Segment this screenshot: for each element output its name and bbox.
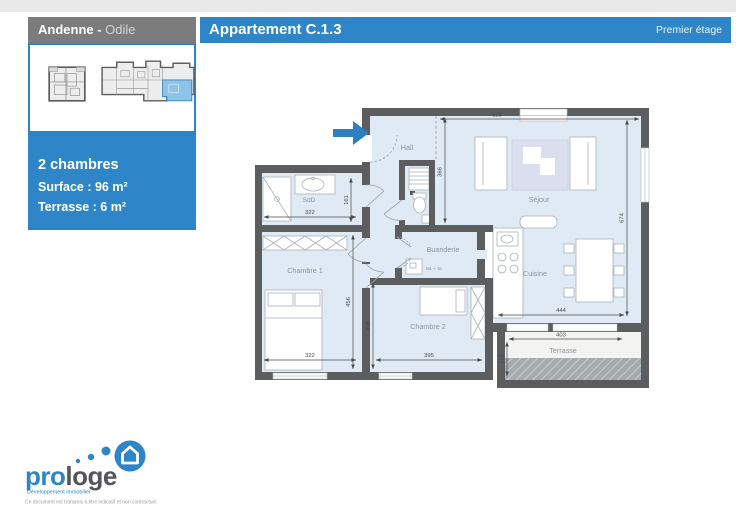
- dim-right-side: 674: [620, 212, 626, 222]
- prologe-logo: prologe Développement immobilier Ce docu…: [12, 430, 202, 510]
- mini-plan-building-a: [46, 63, 88, 105]
- terrace-label: Terrasse : 6 m²: [38, 200, 196, 214]
- page-top-edge: [0, 0, 736, 12]
- room-label-chambre2: Chambre 2: [410, 322, 446, 331]
- toilet: [414, 197, 426, 213]
- dim-terrace-depth: 162: [500, 354, 506, 364]
- location-box: Andenne - Odile: [28, 17, 196, 43]
- terrace-hatch: [505, 358, 641, 380]
- mini-plan-highlight-unit: [163, 80, 192, 101]
- dim-cuisine-width: 444: [556, 308, 566, 314]
- room-label-sdd: SdD: [303, 197, 316, 204]
- room-label-hall: Hall: [401, 143, 414, 152]
- bedrooms-label: 2 chambres: [38, 157, 196, 173]
- logo-text-loge: loge: [65, 461, 116, 491]
- logo-text-pro: pro: [25, 461, 65, 491]
- dim-chambre1-depth: 456: [346, 297, 352, 307]
- dim-sejour-width: 628: [492, 113, 502, 119]
- sejour-furniture: [475, 137, 596, 190]
- closet: [409, 168, 429, 190]
- mini-plans-box: [28, 43, 196, 133]
- washer: [406, 259, 422, 274]
- room-label-buanderie: Buanderie: [427, 245, 460, 254]
- dim-chambre1-width: 322: [305, 353, 315, 359]
- dim-chambre2-depth: 208: [366, 321, 372, 331]
- location-name: Andenne -: [38, 22, 105, 37]
- page-title: Appartement C.1.3: [209, 21, 342, 38]
- door-terrace-1: [507, 324, 548, 331]
- logo-circle: [115, 441, 146, 472]
- dim-sdd-width: 322: [305, 210, 315, 216]
- location-sub: Odile: [105, 22, 135, 37]
- dining-table: [576, 239, 613, 302]
- apartment-info-panel: 2 chambres Surface : 96 m² Terrasse : 6 …: [28, 133, 196, 230]
- mini-plan-building-b: [100, 57, 196, 105]
- page: Andenne - Odile Appartement C.1.3 Premie…: [0, 0, 736, 521]
- title-bar: Appartement C.1.3 Premier étage: [200, 17, 731, 43]
- room-label-terrasse: Terrasse: [549, 346, 577, 355]
- logo-wordmark: prologe: [25, 461, 117, 491]
- room-label-sejour: Séjour: [529, 195, 550, 204]
- dim-hall-depth: 366: [438, 167, 444, 177]
- washer-note: ML + SL: [426, 266, 443, 271]
- floor-label: Premier étage: [656, 24, 722, 36]
- logo-dot-large: [102, 447, 111, 456]
- room-label-cuisine: Cuisine: [523, 269, 547, 278]
- room-label-chambre1: Chambre 1: [287, 266, 323, 275]
- door-terrace-2: [553, 324, 617, 331]
- entry-opening: [360, 135, 372, 162]
- dim-sdd-depth: 161: [344, 195, 350, 205]
- disclaimer-text: Ce document est transmis à titre indicat…: [25, 500, 156, 506]
- dim-terrace-width: 403: [556, 333, 566, 339]
- small-sink: [422, 215, 430, 223]
- logo-dot-medium: [88, 454, 94, 460]
- dim-chambre2-width: 395: [424, 353, 434, 359]
- floor-plan: ML + SL: [245, 90, 657, 396]
- logo-tagline: Développement immobilier: [27, 490, 91, 496]
- surface-label: Surface : 96 m²: [38, 180, 196, 194]
